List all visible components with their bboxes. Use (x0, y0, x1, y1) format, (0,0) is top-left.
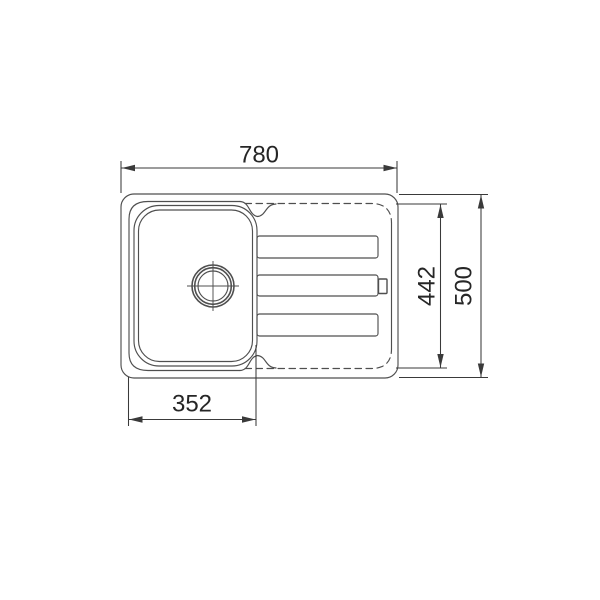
groove-middle-end-cap (379, 279, 388, 294)
dimension-bowl-width: 352 (129, 345, 257, 426)
dim-label-bowl-width: 352 (172, 391, 212, 418)
dimension-drainer-depth: 442 (396, 204, 447, 368)
dimension-overall-depth: 500 (399, 195, 488, 378)
dim-label-overall-width: 780 (239, 142, 279, 169)
arrowhead-bottom (437, 354, 443, 368)
arrowhead-left (129, 416, 143, 422)
dim-label-overall-depth: 500 (451, 266, 478, 306)
groove-top (257, 236, 378, 258)
sink-drawing-svg: 780 352 442 500 (0, 0, 600, 600)
drainboard-grooves (257, 236, 387, 336)
arrowhead-bottom (478, 364, 484, 378)
arrowhead-right (242, 416, 256, 422)
dimension-overall-width: 780 (121, 142, 397, 194)
drainer-hidden-edge-bottom (245, 349, 392, 369)
arrowhead-top (437, 205, 443, 219)
arrowhead-right (384, 165, 398, 171)
drainer-hidden-edge-top (245, 204, 392, 224)
arrowhead-top (478, 195, 484, 209)
product-drawing: 780 352 442 500 (0, 0, 600, 600)
sink-outline (121, 194, 398, 378)
groove-middle (257, 275, 378, 296)
sink-outer-edge (121, 194, 398, 378)
drain-symbol (187, 261, 239, 311)
arrowhead-left (122, 165, 136, 171)
groove-bottom (257, 314, 378, 336)
dim-label-drainer-depth: 442 (414, 266, 441, 306)
